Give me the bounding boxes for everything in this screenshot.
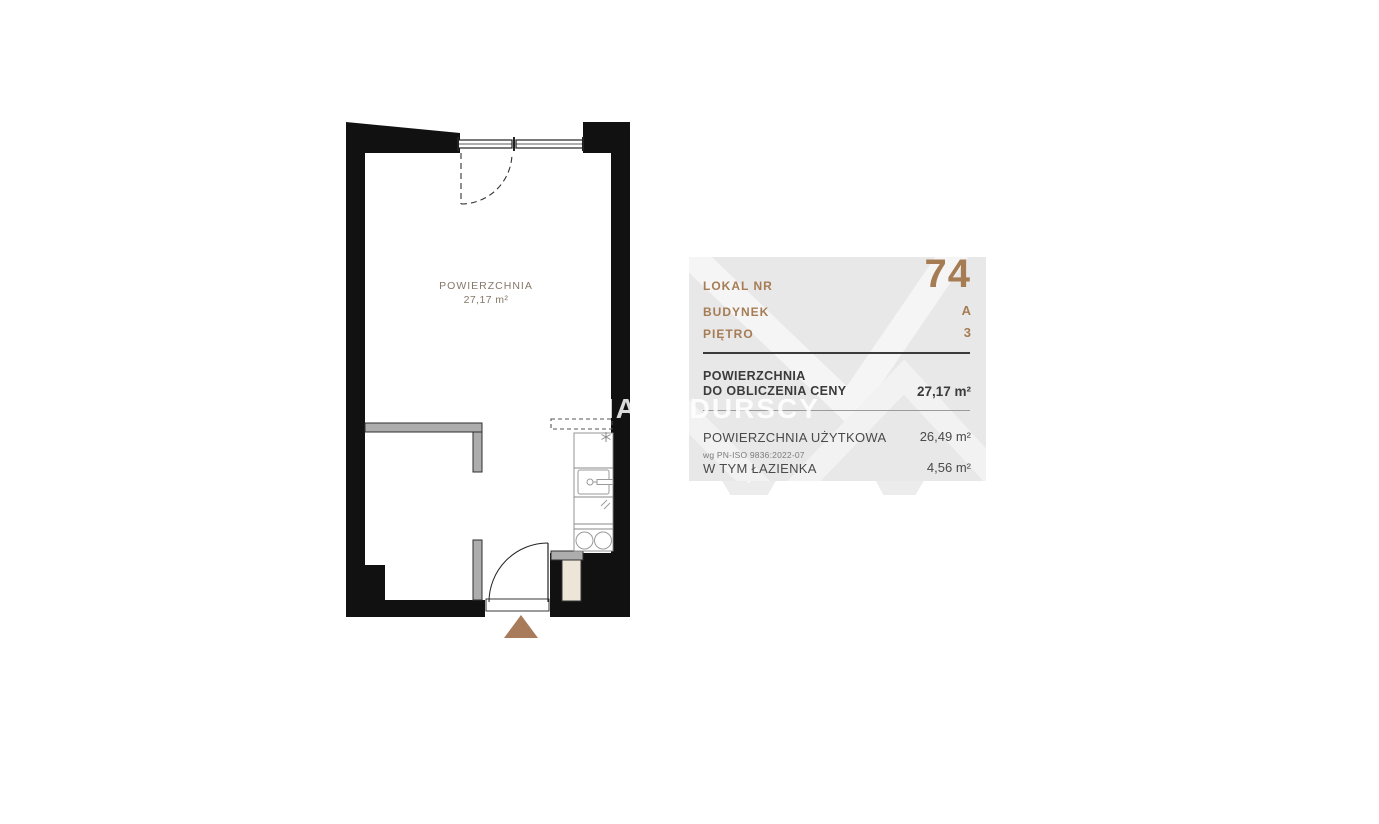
bathroom-area-row: W TYM ŁAZIENKA 4,56 m² (703, 460, 971, 478)
wall-cap (551, 551, 583, 560)
room-label-text: POWIERZCHNIA (416, 280, 556, 292)
window (458, 137, 583, 151)
divider-dark (703, 352, 970, 354)
balcony-door-swing (461, 153, 512, 204)
room-label: POWIERZCHNIA 27,17 m² (416, 280, 556, 306)
price-area-row: POWIERZCHNIA DO OBLICZENIA CENY 27,17 m² (703, 369, 971, 399)
price-area-value: 27,17 m² (917, 384, 971, 399)
usable-area-note: wg PN-ISO 9836:2022-07 (703, 450, 805, 460)
building-value: A (962, 303, 971, 318)
bathroom-area-value: 4,56 m² (927, 460, 971, 475)
floor-row: PIĘTRO 3 (703, 325, 971, 343)
usable-area-label: POWIERZCHNIA UŻYTKOWA (703, 430, 887, 445)
building-label: BUDYNEK (703, 305, 769, 319)
entrance-door (486, 543, 549, 611)
divider-light (703, 410, 970, 411)
unit-number: 74 (925, 254, 972, 294)
wall-left-bottom (346, 122, 485, 617)
floor-label: PIĘTRO (703, 327, 754, 341)
floor-plan (330, 100, 660, 660)
kitchen-upper-cabinet-dashed (551, 419, 612, 429)
usable-area-value: 26,49 m² (920, 429, 971, 444)
price-area-label-line1: POWIERZCHNIA (703, 369, 971, 384)
shaft-box (562, 560, 581, 601)
building-row: BUDYNEK A (703, 303, 971, 321)
floor-value: 3 (964, 325, 971, 340)
info-panel: LOKAL NR 74 BUDYNEK A PIĘTRO 3 POWIERZCH… (689, 257, 986, 481)
unit-label: LOKAL NR (703, 279, 773, 293)
room-area-value: 27,17 m² (416, 294, 556, 306)
entrance-marker (504, 615, 538, 638)
page: POWIERZCHNIA 27,17 m² LOKAL NR 74 BUDYNE… (0, 0, 1379, 824)
bathroom-area-label: W TYM ŁAZIENKA (703, 461, 817, 476)
panel-logo-fragments (689, 481, 986, 495)
panel-content: LOKAL NR 74 BUDYNEK A PIĘTRO 3 POWIERZCH… (689, 257, 986, 481)
